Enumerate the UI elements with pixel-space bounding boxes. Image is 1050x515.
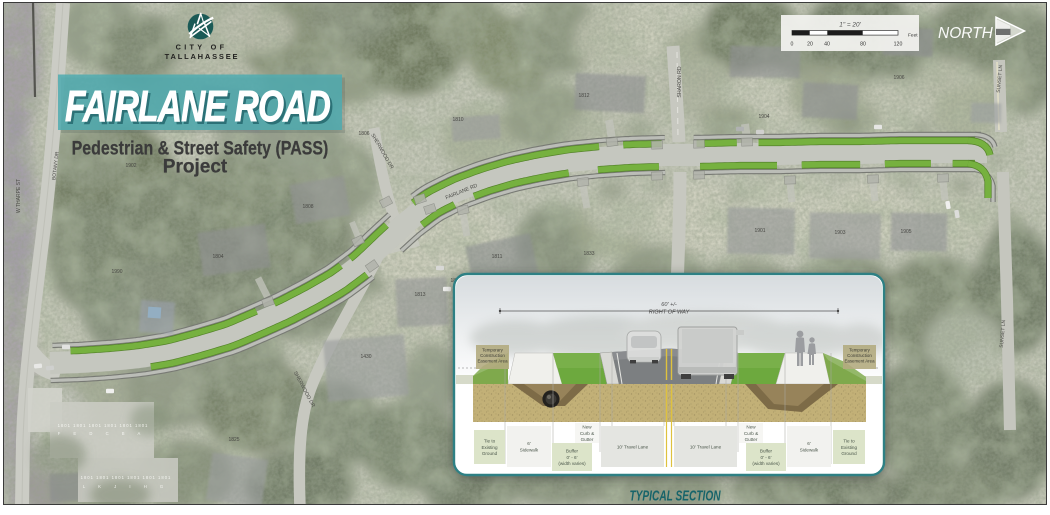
svg-text:NORTH: NORTH [938, 25, 994, 42]
svg-text:1808: 1808 [302, 204, 313, 210]
svg-text:1813: 1813 [414, 292, 425, 298]
svg-text:1902: 1902 [125, 163, 136, 169]
svg-text:Easement Area: Easement Area [477, 359, 508, 364]
svg-text:20: 20 [807, 42, 813, 48]
svg-text:1804: 1804 [212, 254, 223, 260]
svg-text:1810: 1810 [452, 117, 463, 123]
svg-text:Tie to: Tie to [484, 439, 496, 444]
svg-text:1430: 1430 [360, 354, 371, 360]
svg-text:Gutter: Gutter [581, 437, 594, 442]
svg-text:80: 80 [860, 42, 866, 48]
svg-text:Buffer: Buffer [760, 449, 773, 454]
svg-text:Project: Project [163, 157, 228, 178]
svg-text:1833: 1833 [583, 251, 594, 257]
svg-text:1903: 1903 [834, 230, 845, 236]
svg-text:1825: 1825 [228, 437, 239, 443]
svg-text:Tie to: Tie to [843, 439, 855, 444]
svg-text:1801 1801 1801 1801 1801 1801: 1801 1801 1801 1801 1801 1801 [58, 423, 149, 428]
svg-text:Gutter: Gutter [745, 437, 758, 442]
svg-text:RIGHT OF WAY: RIGHT OF WAY [649, 310, 691, 316]
svg-text:1904: 1904 [758, 114, 769, 120]
svg-text:Ground: Ground [482, 451, 498, 456]
svg-text:Ground: Ground [841, 451, 857, 456]
svg-text:1811: 1811 [492, 254, 503, 260]
svg-text:0' - 6': 0' - 6' [567, 455, 578, 460]
svg-text:10' Travel Lane: 10' Travel Lane [617, 444, 649, 449]
svg-text:Construction: Construction [847, 353, 872, 358]
svg-text:1812: 1812 [578, 93, 589, 99]
svg-text:1806: 1806 [358, 131, 369, 137]
svg-text:F E D C B A: F E D C B A [58, 431, 147, 436]
svg-text:Construction: Construction [480, 353, 505, 358]
svg-text:1901: 1901 [754, 228, 765, 234]
svg-text:(width varies): (width varies) [558, 461, 586, 466]
svg-text:FAIRLANE ROAD: FAIRLANE ROAD [65, 83, 331, 131]
svg-text:L K J I H G: L K J I H G [83, 484, 169, 489]
svg-text:6': 6' [807, 441, 811, 446]
svg-text:1905: 1905 [900, 229, 911, 235]
svg-text:6': 6' [527, 441, 531, 446]
svg-text:TALLAHASSEE: TALLAHASSEE [165, 52, 240, 61]
svg-text:CITY OF: CITY OF [176, 43, 228, 52]
svg-text:SHARON RD: SHARON RD [677, 66, 683, 97]
svg-text:0: 0 [791, 42, 794, 48]
svg-text:10' Travel Lane: 10' Travel Lane [690, 444, 722, 449]
svg-text:Existing: Existing [481, 445, 498, 450]
svg-text:120: 120 [894, 42, 903, 48]
svg-text:1" = 20': 1" = 20' [839, 22, 861, 29]
svg-text:Existing: Existing [841, 445, 858, 450]
svg-text:New: New [582, 425, 592, 430]
svg-text:W THARPE ST: W THARPE ST [16, 179, 22, 213]
svg-text:Buffer: Buffer [566, 449, 579, 454]
svg-text:Curb &: Curb & [580, 431, 594, 436]
svg-text:TYPICAL SECTION: TYPICAL SECTION [629, 488, 721, 504]
svg-text:60' +/-: 60' +/- [661, 302, 677, 308]
svg-text:1906: 1906 [893, 75, 904, 81]
svg-text:40: 40 [824, 42, 830, 48]
svg-text:New: New [746, 425, 756, 430]
svg-text:Curb &: Curb & [744, 431, 758, 436]
svg-text:Feet: Feet [908, 33, 918, 39]
svg-text:Temporary: Temporary [482, 348, 504, 353]
svg-text:Sidewalk: Sidewalk [800, 447, 819, 452]
svg-text:1990: 1990 [111, 269, 122, 275]
svg-text:1801 1801 1801 1801 1801 1801: 1801 1801 1801 1801 1801 1801 [81, 475, 172, 480]
svg-text:Sidewalk: Sidewalk [520, 447, 539, 452]
svg-text:0' - 6': 0' - 6' [761, 455, 772, 460]
svg-text:Temporary: Temporary [849, 348, 871, 353]
svg-text:(width varies): (width varies) [752, 461, 780, 466]
svg-text:Easement Area: Easement Area [844, 359, 875, 364]
